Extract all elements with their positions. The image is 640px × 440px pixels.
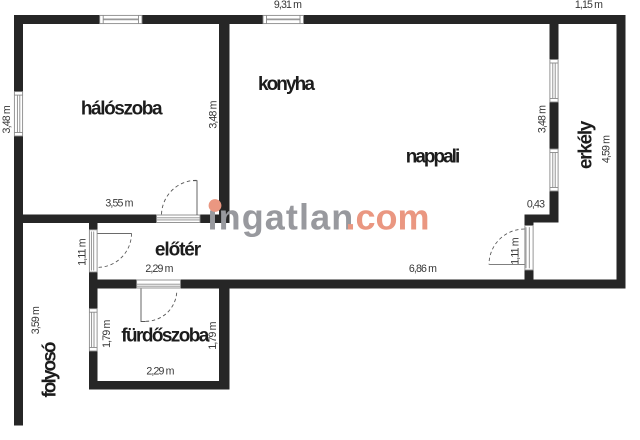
svg-text:folyosó: folyosó [40, 342, 61, 398]
svg-text:0,43: 0,43 [527, 198, 545, 210]
svg-text:nappali: nappali [406, 146, 459, 167]
svg-text:4,59 m: 4,59 m [601, 135, 613, 163]
svg-text:konyha: konyha [258, 74, 315, 95]
svg-text:hálószoba: hálószoba [81, 99, 163, 120]
svg-text:3,48 m: 3,48 m [208, 100, 220, 128]
svg-text:erkély: erkély [575, 120, 596, 169]
svg-text:3,59 m: 3,59 m [30, 306, 42, 334]
svg-text:1,79 m: 1,79 m [101, 320, 113, 348]
svg-text:6,86 m: 6,86 m [409, 263, 437, 275]
svg-text:3,55 m: 3,55 m [105, 198, 133, 210]
svg-text:.com: .com [346, 196, 430, 237]
svg-text:fürdőszoba: fürdőszoba [121, 325, 209, 346]
svg-text:3,48 m: 3,48 m [537, 105, 549, 133]
svg-text:2,29 m: 2,29 m [145, 263, 173, 275]
svg-text:1,11 m: 1,11 m [510, 237, 522, 265]
svg-text:1,11 m: 1,11 m [77, 238, 89, 266]
svg-text:2,29 m: 2,29 m [146, 366, 174, 378]
svg-text:1,79 m: 1,79 m [207, 321, 219, 349]
svg-text:3,48 m: 3,48 m [1, 105, 13, 133]
svg-text:1,15 m: 1,15 m [575, 0, 603, 11]
svg-text:9,31 m: 9,31 m [274, 0, 302, 11]
svg-text:előtér: előtér [155, 240, 202, 261]
svg-text:ıngatlan: ıngatlan [208, 196, 355, 237]
